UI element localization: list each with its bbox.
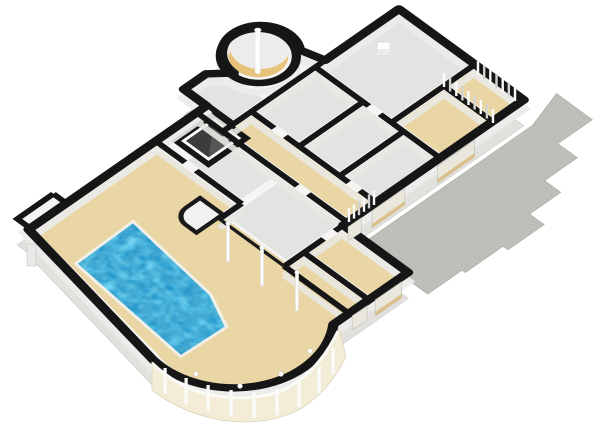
spiral-stair-pole — [254, 28, 261, 74]
column — [260, 245, 264, 286]
column — [226, 221, 230, 262]
bay-window-west — [27, 244, 36, 266]
floorplan-3d-render — [0, 0, 600, 424]
floorplan-canvas — [0, 0, 600, 424]
column — [295, 270, 299, 311]
garage-fixture — [377, 42, 390, 55]
